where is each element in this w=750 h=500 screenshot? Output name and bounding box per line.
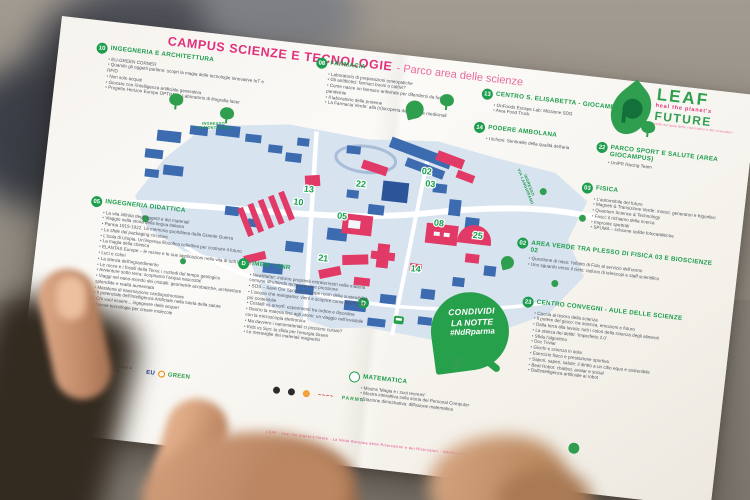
section-number-badge: 22 xyxy=(596,141,608,153)
tree-trunk-icon xyxy=(621,108,627,122)
map-courtyard xyxy=(348,220,361,229)
section-number-badge: 10 xyxy=(96,42,108,54)
map-marker-label: 08 xyxy=(433,217,444,228)
tree-icon xyxy=(168,93,184,110)
map-entrance-label-montanara: INGRESSO VIA MONTANARA xyxy=(184,122,242,131)
brochure-paper: CAMPUS SCIENZE E TECNOLOGIE - Parco area… xyxy=(15,16,750,500)
eu-green-logo: EUGREEN xyxy=(146,369,191,381)
sponsor-logo xyxy=(273,386,281,394)
map-marker-label: 03 xyxy=(425,178,436,189)
leaf-sticker-icon xyxy=(567,442,580,455)
section-title: FISICA xyxy=(596,184,619,195)
map-marker-label: 22 xyxy=(355,178,366,189)
section-centro-convegni: 23 CENTRO CONVEGNI - AULE DELLE SCIENZE … xyxy=(515,296,726,395)
section-number-badge: 03 xyxy=(581,182,593,194)
section-number-badge: 13 xyxy=(481,88,493,100)
section-number-badge: 14 xyxy=(473,121,485,133)
section-parco-sport-salute: 22 PARCO SPORT E SALUTE (AREA GIOCAMPUS)… xyxy=(595,141,749,181)
tree-icon xyxy=(219,107,235,124)
section-fisica: 03 FISICA L'automobile del futuroMagneti… xyxy=(577,182,741,247)
tree-icon xyxy=(439,93,455,110)
map-courtyard xyxy=(434,231,440,236)
tree-icon xyxy=(640,120,656,137)
section-number-badge xyxy=(348,371,360,383)
map-marker-label: 05 xyxy=(337,210,348,221)
photo-of-campus-map-brochure: CAMPUS SCIENZE E TECNOLOGIE - Parco area… xyxy=(0,0,750,500)
map-marker-label: 10 xyxy=(293,196,304,207)
map-marker-label: 13 xyxy=(303,184,314,195)
section-number-badge: D xyxy=(238,258,250,270)
section-number-badge: 08 xyxy=(316,57,328,69)
map-bus-stop-icon xyxy=(393,316,404,325)
sponsor-logo xyxy=(302,390,310,398)
left-thumb-highlight xyxy=(56,276,86,320)
map-marker-label: 14 xyxy=(410,263,421,274)
map-marker-label: 25 xyxy=(472,230,483,241)
map-courtyard xyxy=(443,233,449,238)
section-number-badge: 23 xyxy=(522,296,534,308)
eu-green-green-text: GREEN xyxy=(167,372,190,380)
section-title: MATEMATICA xyxy=(363,372,408,385)
map-building-central-hall xyxy=(381,180,409,203)
section-number-badge: 02 xyxy=(517,237,529,249)
sponsor-script-logo: ~~~~ xyxy=(317,392,334,400)
section-bullet-list: NewMatter: indurre proprietà extraterres… xyxy=(243,271,372,348)
map-marker-label: 02 xyxy=(421,166,432,177)
section-number-badge: 05 xyxy=(91,196,103,208)
condividi-la-notte-badge: CONDIVIDI LA NOTTE #NdRparma xyxy=(422,286,523,382)
sponsor-logo xyxy=(288,388,296,396)
eu-green-eu-text: EU xyxy=(146,369,155,376)
map-marker-label: 21 xyxy=(318,253,329,264)
section-imem-cnr: D IMEM - CNR NewMatter: indurre propriet… xyxy=(230,258,374,349)
eu-green-circle-icon xyxy=(157,370,165,378)
